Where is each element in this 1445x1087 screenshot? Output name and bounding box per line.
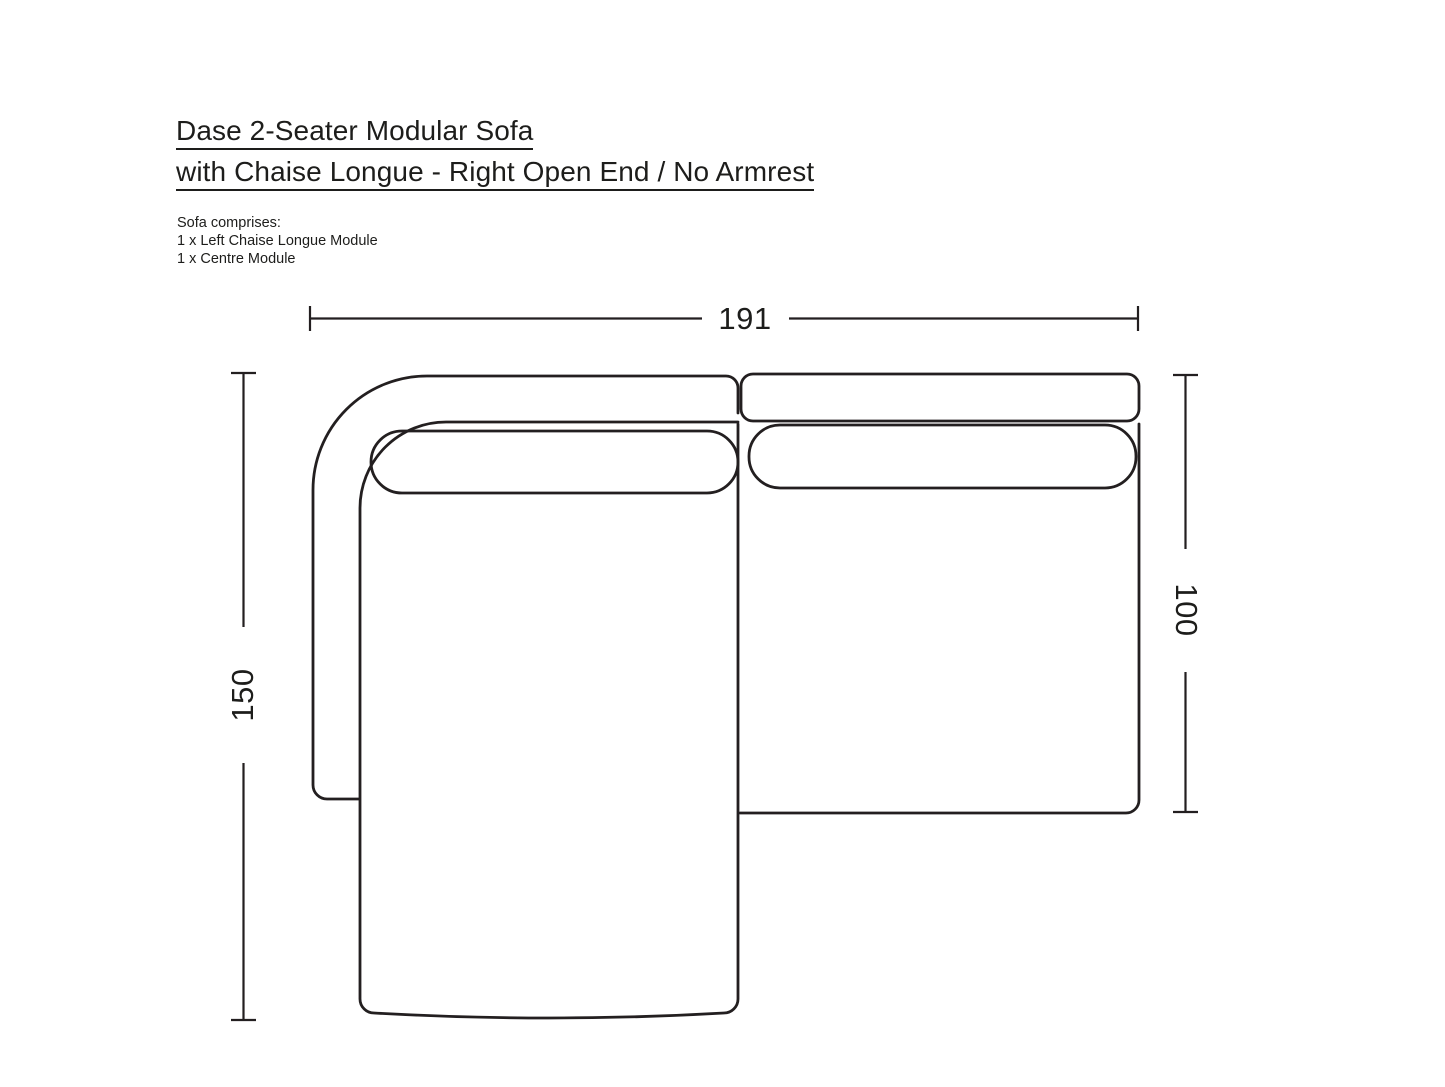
dimension-overall-width: 191 <box>310 301 1138 336</box>
chaise-longue-module <box>313 376 738 1018</box>
centre-module <box>740 374 1139 813</box>
dimension-overall-depth: 150 <box>225 373 260 1020</box>
dimension-value-module-depth: 100 <box>1169 583 1204 636</box>
chaise-arm-back-outer-outline <box>313 376 738 799</box>
dimension-module-depth: 100 <box>1169 375 1204 812</box>
sofa-top-view-drawing: 191 150 100 <box>0 0 1445 1087</box>
chaise-back-cushion <box>371 431 738 493</box>
centre-back-cushion <box>749 425 1136 488</box>
centre-seat-outline <box>740 424 1139 813</box>
centre-backrest <box>741 374 1139 421</box>
dimension-value-depth: 150 <box>225 668 260 721</box>
product-dimension-sheet: Dase 2-Seater Modular Sofa with Chaise L… <box>0 0 1445 1087</box>
chaise-seat-outline <box>360 422 738 1018</box>
dimension-value-width: 191 <box>718 301 771 336</box>
